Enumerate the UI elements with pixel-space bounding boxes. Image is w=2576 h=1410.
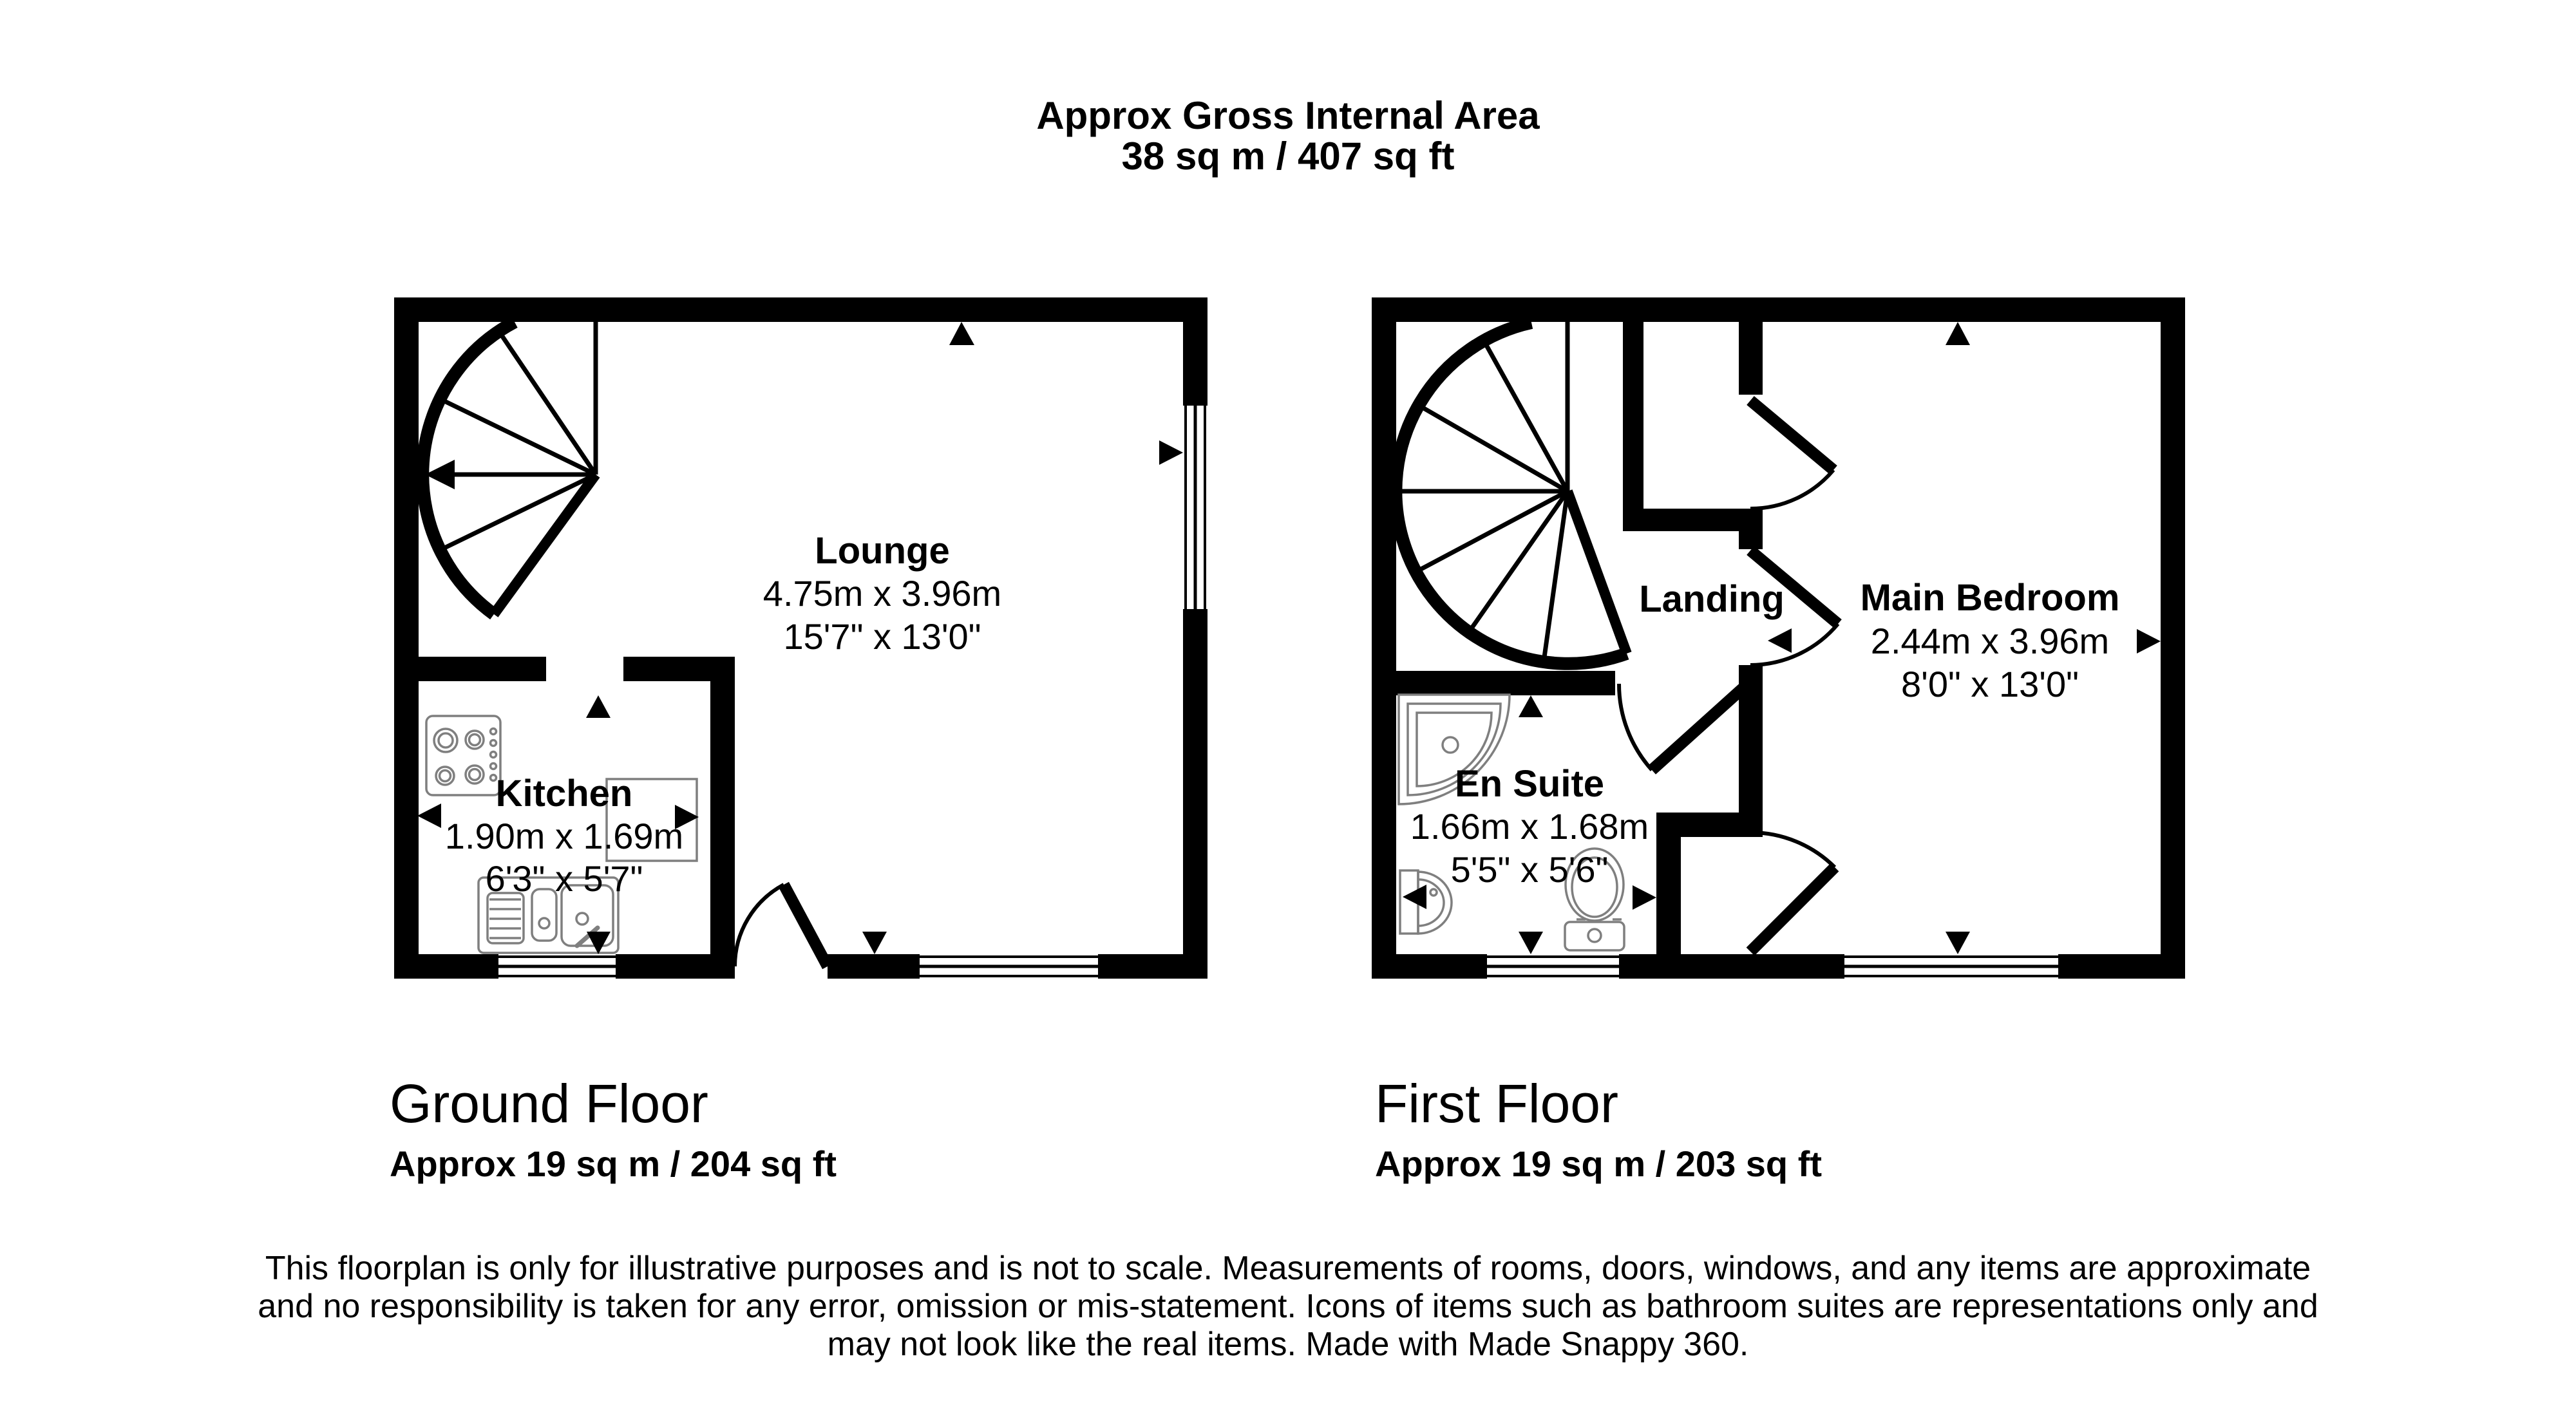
floorplan-page: Approx Gross Internal Area 38 sq m / 407… [0,0,2576,1410]
room-dim-metric: 1.66m x 1.68m [1410,806,1649,847]
room-dim-metric: 1.90m x 1.69m [445,816,683,856]
wall-stair [1623,322,1643,509]
wall [1372,322,1396,954]
spiral-stairs-icon [422,322,596,614]
measure-down-icon [1519,932,1543,954]
measure-up-icon [1946,322,1970,345]
measure-down-icon [587,932,611,954]
hob-icon [426,716,500,795]
window-ensuite-bottom [1484,954,1622,979]
ground-floor-caption: Ground Floor [390,1073,708,1134]
window-lounge-bottom [917,954,1101,979]
first-floor-area: Approx 19 sq m / 203 sq ft [1375,1143,1822,1184]
measure-left-icon [1403,885,1426,909]
first-floor-plan: Landing Main Bedroom 2.44m x 3.96m 8'0" … [1372,297,2185,979]
bedroom-lower-door-swing [1750,832,1835,952]
wall [2161,322,2185,954]
room-label-ensuite: En Suite [1455,763,1604,805]
window-bedroom-bottom [1842,954,2061,979]
measure-left-icon [417,804,441,828]
measure-up-icon [586,695,611,718]
wall-ensuite-top [1396,671,1615,695]
measure-right-icon [1159,440,1183,465]
measure-right-icon [2137,629,2161,653]
window-kitchen-bottom [496,954,618,979]
first-floor-caption: First Floor [1375,1073,1618,1134]
ground-floor-area: Approx 19 sq m / 204 sq ft [390,1143,837,1184]
stair-direction-arrow [425,460,455,489]
room-label-kitchen: Kitchen [496,773,633,814]
wall-ensuite-right [1656,837,1681,954]
wall [394,322,419,954]
room-dim-imperial: 6'3" x 5'7" [486,858,643,899]
entry-door-opening [735,954,828,979]
measure-right-icon [1633,885,1656,910]
room-dim-imperial: 8'0" x 13'0" [1901,664,2079,704]
room-dim-imperial: 5'5" x 5'6" [1451,849,1609,890]
wall [1372,297,2185,322]
disclaimer-line-3: may not look like the real items. Made w… [828,1326,1749,1363]
measure-left-icon [1768,628,1792,653]
room-label-landing: Landing [1639,578,1785,620]
room-dim-metric: 4.75m x 3.96m [763,573,1001,614]
ground-floor-plan: Lounge 4.75m x 3.96m 15'7" x 13'0" Kitch… [394,297,1207,979]
wall-vestibule [1656,813,1763,837]
floorplan-canvas: Approx Gross Internal Area 38 sq m / 407… [0,0,2576,1410]
wall [394,297,1207,322]
ensuite-door-swing [1619,684,1748,770]
kitchen-door-opening [546,657,623,681]
measure-up-icon [949,322,974,345]
page-title-area: 38 sq m / 407 sq ft [1122,135,1455,178]
spiral-stairs-icon [1395,322,1627,664]
room-label-bedroom: Main Bedroom [1861,577,2120,619]
measure-up-icon [1519,695,1543,717]
disclaimer-line-1: This floorplan is only for illustrative … [265,1250,2311,1287]
measure-down-icon [862,932,887,954]
page-title: Approx Gross Internal Area [1036,94,1540,137]
room-label-lounge: Lounge [815,530,949,572]
measure-down-icon [1946,932,1970,954]
room-dim-metric: 2.44m x 3.96m [1871,621,2109,661]
window-right [1183,403,1207,612]
room-dim-imperial: 15'7" x 13'0" [783,616,981,657]
disclaimer-line-2: and no responsibility is taken for any e… [258,1288,2318,1325]
wall-kitchen-right [710,657,735,954]
entry-door-swing [735,885,828,966]
